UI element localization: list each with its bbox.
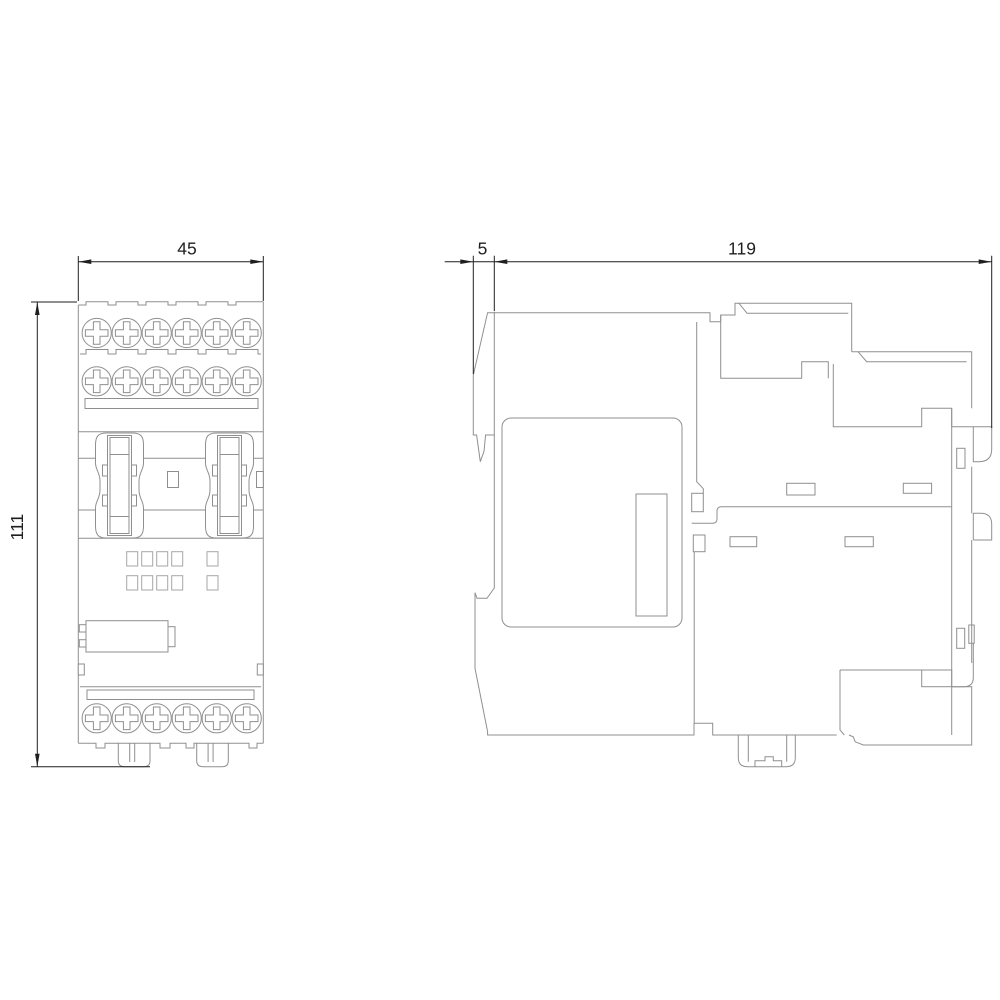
- dimension-front-width: 45: [78, 239, 263, 302]
- side-notch: [78, 664, 84, 675]
- arrow-top: [35, 302, 40, 315]
- dimension-side-depths: 5 119: [445, 239, 992, 429]
- terminal-row-separator: [80, 350, 261, 355]
- front-view: [78, 302, 263, 767]
- connector-right: [206, 433, 254, 538]
- front-upper-terminals: [80, 318, 261, 408]
- side-label-window: [636, 494, 667, 616]
- side-notch: [257, 664, 263, 675]
- connector-side-tab: [168, 472, 179, 488]
- side-body-outline: [475, 312, 837, 735]
- dim-label-front-width: 45: [177, 239, 196, 259]
- dim-label-front-height: 111: [7, 514, 27, 541]
- arrow-right: [250, 259, 263, 264]
- arrow-depth-left: [494, 259, 507, 264]
- side-front-flange: [473, 313, 494, 462]
- arrow-depth-right: [979, 259, 992, 264]
- din-rail-clip: [738, 735, 795, 767]
- front-connectors: [96, 433, 264, 538]
- dim-label-side-offset: 5: [478, 239, 488, 259]
- side-module-divider: [692, 322, 952, 723]
- connector-side-tab: [257, 472, 264, 488]
- arrow-bottom: [35, 754, 40, 767]
- side-vent-slots: [730, 483, 932, 546]
- side-front-panel: [502, 418, 682, 627]
- side-terminal-block-lower: [833, 352, 973, 427]
- connector-left: [96, 433, 144, 538]
- terminal-cover-bar: [85, 399, 258, 409]
- side-terminal-block-upper: [721, 303, 852, 378]
- led-indicators: [127, 552, 218, 590]
- front-lower-terminals: [80, 687, 261, 733]
- dim-label-side-depth: 119: [728, 239, 756, 259]
- front-label-window: [79, 621, 175, 652]
- side-rear-covers: [952, 408, 992, 735]
- front-bottom-tabs: [118, 743, 228, 766]
- side-view: [473, 303, 991, 766]
- arrow-left: [78, 259, 91, 264]
- dimension-drawing: 45 111 5 119: [0, 0, 1000, 1000]
- drawing-canvas: 45 111 5 119: [0, 0, 1000, 1000]
- arrow-offset: [460, 259, 473, 264]
